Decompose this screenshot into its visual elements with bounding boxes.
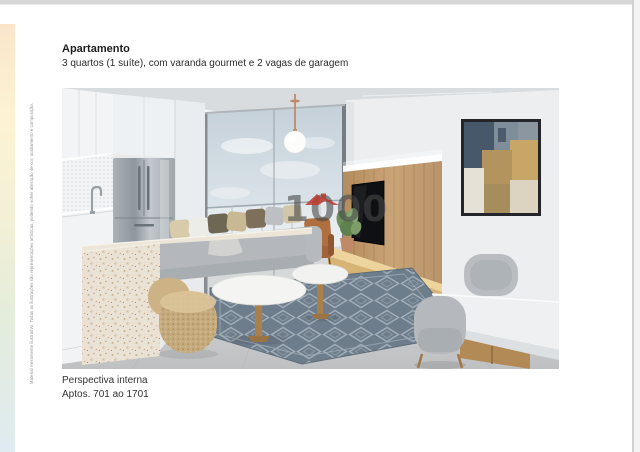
page-title: Apartamento [62, 43, 348, 55]
page-subtitle: 3 quartos (1 suíte), com varanda gourmet… [62, 58, 348, 69]
caption-line-2: Aptos. 701 ao 1701 [62, 388, 149, 402]
render-scene [62, 88, 559, 369]
framed-art [461, 119, 541, 216]
left-gradient-strip [0, 24, 15, 452]
window-right-edge [632, 0, 640, 452]
caption-line-1: Perspectiva interna [62, 374, 149, 388]
apartment-interior-render: 1000 [62, 88, 559, 369]
legal-disclaimer-text: Material meramente ilustrativo. Todas as… [29, 82, 34, 384]
page-header: Apartamento 3 quartos (1 suíte), com var… [62, 43, 348, 69]
window-top-edge [0, 0, 640, 5]
image-caption: Perspectiva interna Aptos. 701 ao 1701 [62, 374, 149, 402]
brochure-page: Material meramente ilustrativo. Todas as… [0, 0, 640, 452]
